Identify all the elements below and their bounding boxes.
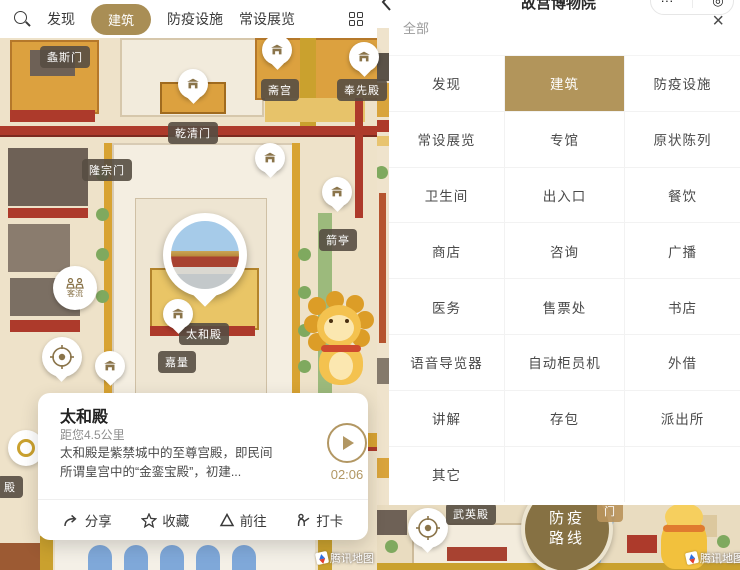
tencent-compass-icon: [315, 551, 329, 565]
category-restroom[interactable]: 卫生间: [389, 168, 505, 224]
category-medical[interactable]: 医务: [389, 279, 505, 335]
map-pin[interactable]: [349, 42, 379, 72]
tab-bar-tabs: 发现建筑防疫设施常设展览: [47, 4, 295, 35]
category-other[interactable]: 其它: [389, 447, 505, 503]
tab-bar: 发现建筑防疫设施常设展览: [0, 0, 377, 38]
app-screenshot: 发现建筑防疫设施常设展览: [0, 0, 740, 570]
audio-duration: 02:06: [325, 467, 369, 482]
poi-title: 太和殿: [60, 403, 108, 427]
grid-icon[interactable]: [349, 12, 364, 27]
map-pin[interactable]: [255, 143, 285, 173]
category-panel: 全部 × 发现建筑防疫设施常设展览专馆原状陈列卫生间出入口餐饮商店咨询广播医务售…: [389, 0, 740, 505]
target-icon: [49, 344, 75, 370]
card-action-bar: 分享收藏前往打卡: [38, 499, 368, 540]
poi-description: 太和殿是紫禁城中的至尊宫殿，即民间 所谓皇宫中的“金銮宝殿”，初建...: [60, 444, 310, 482]
category-police-station[interactable]: 派出所: [625, 391, 740, 447]
check-in-button[interactable]: 打卡: [296, 510, 343, 530]
hall-icon: [171, 308, 185, 320]
category-locker[interactable]: 存包: [505, 391, 625, 447]
category-bookstore[interactable]: 书店: [625, 279, 740, 335]
category-discover[interactable]: 发现: [389, 56, 505, 112]
map-pin[interactable]: [178, 69, 208, 99]
crowd-flow-marker[interactable]: 客流: [53, 266, 97, 310]
poi-card: 太和殿 距您4.5公里 太和殿是紫禁城中的至尊宫殿，即民间 所谓皇宫中的“金銮宝…: [38, 393, 368, 540]
tab-permanent-exhibitions[interactable]: 常设展览: [239, 9, 295, 29]
tab-discover[interactable]: 发现: [47, 9, 75, 29]
share-button[interactable]: 分享: [63, 510, 112, 530]
category-permanent-exhibitions[interactable]: 常设展览: [389, 112, 505, 168]
category-ticket-office[interactable]: 售票处: [505, 279, 625, 335]
category-entrance-exit[interactable]: 出入口: [505, 168, 625, 224]
target-icon: [415, 515, 441, 541]
map-label-partial-hall-label[interactable]: 殿: [0, 476, 23, 498]
tab-architecture[interactable]: 建筑: [91, 4, 151, 35]
miniprogram-capsule[interactable]: ··· ◎: [650, 0, 734, 15]
play-icon: [343, 436, 354, 450]
category-audio-guide[interactable]: 语音导览器: [389, 335, 505, 391]
compass-button[interactable]: [42, 337, 82, 377]
poi-distance: 距您4.5公里: [60, 426, 125, 443]
category-empty: [505, 447, 625, 503]
action-label: 分享: [85, 510, 112, 530]
map-pin[interactable]: [95, 351, 125, 381]
action-label: 打卡: [316, 510, 343, 530]
checkin-icon: [296, 513, 311, 528]
hall-icon: [330, 186, 344, 198]
all-label: 全部: [403, 18, 429, 37]
tencent-compass-icon: [685, 551, 699, 565]
category-broadcast[interactable]: 广播: [625, 223, 740, 279]
map-label-jian-pavilion[interactable]: 箭亭: [319, 229, 357, 251]
map-label-zhai-palace[interactable]: 斋宫: [261, 79, 299, 101]
tab-epidemic-facilities[interactable]: 防疫设施: [167, 9, 223, 29]
category-shop[interactable]: 商店: [389, 223, 505, 279]
poi-photo-thumbnail: [171, 221, 239, 289]
map-label-zhongsi-gate[interactable]: 螽斯门: [40, 46, 90, 68]
favorite-button[interactable]: 收藏: [141, 510, 189, 530]
category-dining[interactable]: 餐饮: [625, 168, 740, 224]
home-icon[interactable]: ◎: [712, 0, 723, 9]
map-pin[interactable]: [322, 177, 352, 207]
compass-button-right[interactable]: [408, 508, 448, 548]
category-empty: [625, 447, 740, 503]
category-consultation[interactable]: 咨询: [505, 223, 625, 279]
hall-icon: [270, 44, 284, 56]
category-special-halls[interactable]: 专馆: [505, 112, 625, 168]
map-attribution-right: 腾讯地图: [686, 550, 740, 566]
selected-poi-marker[interactable]: [163, 213, 247, 297]
map-label-longzong-gate[interactable]: 隆宗门: [82, 159, 132, 181]
action-label: 前往: [240, 510, 267, 530]
map-label-wuying-hall[interactable]: 武英殿: [446, 503, 496, 525]
lion-mascot: [302, 295, 378, 387]
map-pin[interactable]: [163, 299, 193, 329]
audio-play-button[interactable]: [327, 423, 367, 463]
category-original-state-display[interactable]: 原状陈列: [625, 112, 740, 168]
hall-icon: [357, 51, 371, 63]
hall-icon: [103, 360, 117, 372]
hall-icon: [263, 152, 277, 164]
crowd-label: 客流: [67, 288, 83, 299]
search-icon[interactable]: [14, 11, 31, 28]
map-label-jialiang[interactable]: 嘉量: [158, 351, 196, 373]
navigate-button[interactable]: 前往: [219, 510, 267, 530]
action-label: 收藏: [162, 510, 189, 530]
map-pin[interactable]: [262, 35, 292, 65]
category-epidemic-facilities[interactable]: 防疫设施: [625, 56, 740, 112]
map-label-qianqing-gate[interactable]: 乾清门: [168, 122, 218, 144]
category-architecture[interactable]: 建筑: [505, 56, 625, 112]
category-grid: 发现建筑防疫设施常设展览专馆原状陈列卫生间出入口餐饮商店咨询广播医务售票处书店语…: [389, 55, 740, 502]
hall-icon: [186, 78, 200, 90]
category-atm[interactable]: 自动柜员机: [505, 335, 625, 391]
category-lending[interactable]: 外借: [625, 335, 740, 391]
star-icon: [141, 513, 157, 528]
navigate-icon: [219, 513, 235, 527]
map-attribution: 腾讯地图: [316, 550, 374, 566]
more-icon[interactable]: ···: [660, 0, 673, 8]
share-icon: [63, 513, 80, 528]
category-guide-service[interactable]: 讲解: [389, 391, 505, 447]
map-label-fengxian-hall[interactable]: 奉先殿: [337, 79, 387, 101]
